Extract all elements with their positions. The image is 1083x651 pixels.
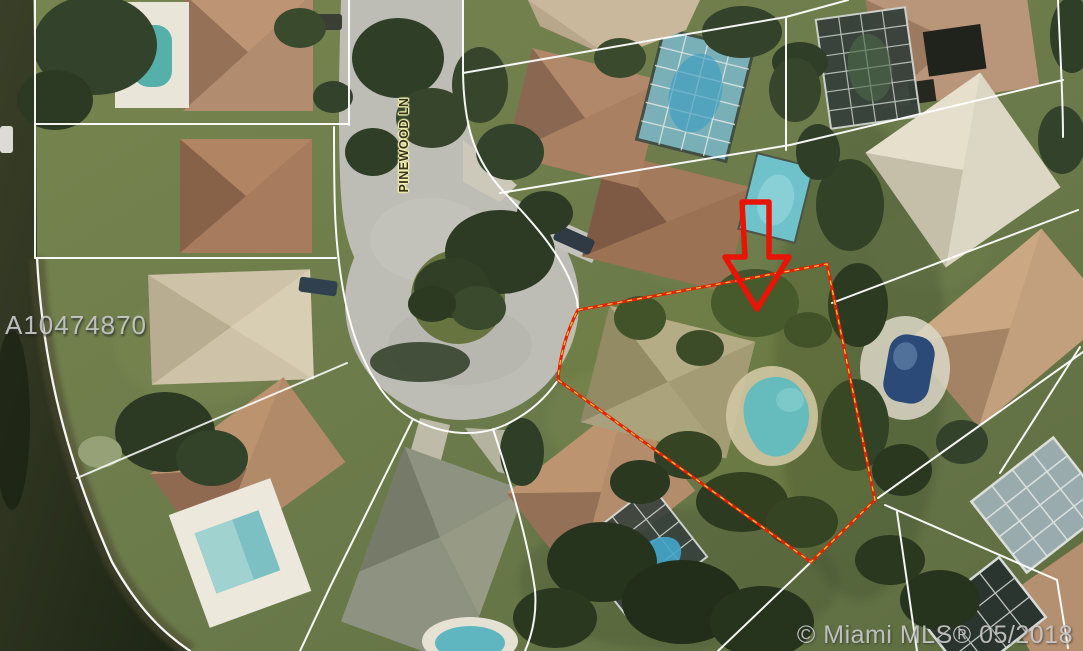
house — [180, 139, 312, 253]
courtyard — [923, 24, 987, 77]
pale-palm — [78, 436, 122, 468]
aerial-photo-canvas — [0, 0, 1083, 651]
aerial-listing-photo: A10474870 PINEWOOD LN © Miami MLS® 05/20… — [0, 0, 1083, 651]
screened-pool-enclosure — [816, 7, 920, 128]
house — [148, 269, 314, 385]
